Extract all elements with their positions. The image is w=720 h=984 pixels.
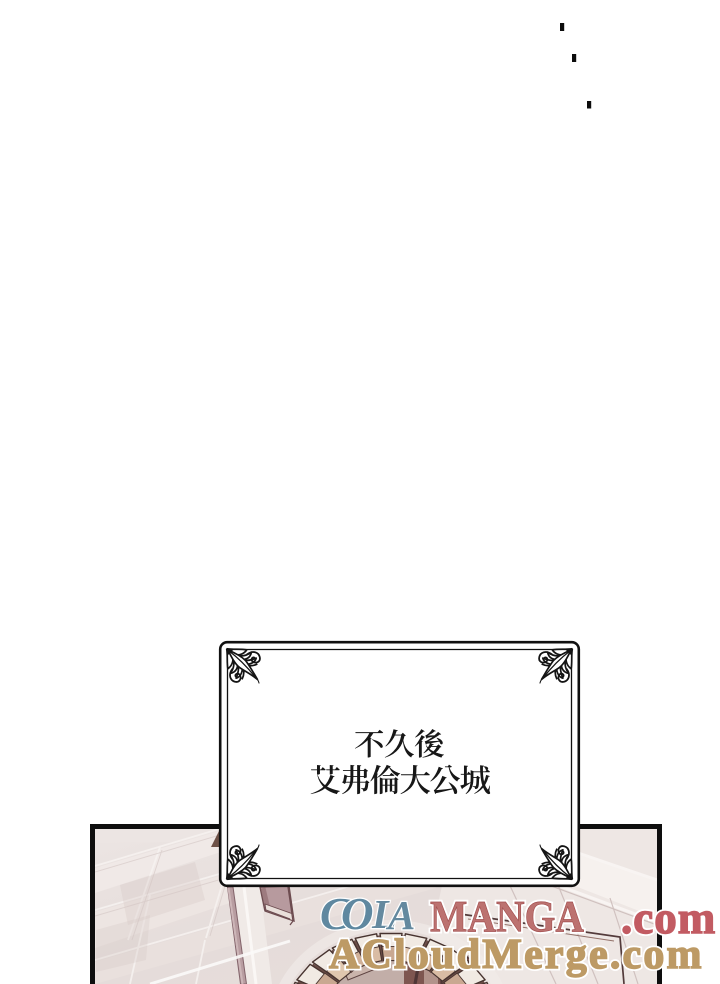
svg-text:ACloudMerge.com: ACloudMerge.com [329, 932, 704, 978]
